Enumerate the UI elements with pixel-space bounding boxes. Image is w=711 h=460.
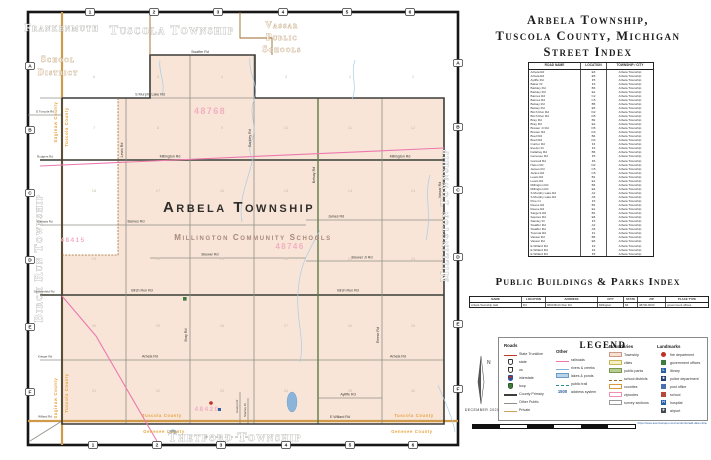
section-number: 29 — [156, 323, 161, 328]
tuscola-township-label: Tuscola Township — [109, 22, 234, 37]
section-number: 12 — [411, 125, 416, 130]
svg-text:5: 5 — [346, 10, 349, 16]
landmark-icon: L — [661, 368, 666, 373]
map-title-label: Arbela Township — [163, 199, 315, 216]
legend-item: Private — [504, 406, 544, 414]
millington-township-label: Millington Township — [439, 148, 451, 282]
svg-text:A: A — [28, 64, 32, 70]
svg-text:2: 2 — [156, 443, 159, 449]
section-number: 15 — [284, 188, 289, 193]
compass-north-arrow: N — [468, 352, 494, 408]
legend-other-column: Other railroads rivers & creeks lakes & … — [556, 349, 596, 396]
section-number: 13 — [411, 188, 416, 193]
svg-text:Millington Rd: Millington Rd — [160, 155, 181, 159]
legend-item: fire department — [657, 351, 700, 359]
svg-text:Belsay Rd: Belsay Rd — [312, 167, 316, 183]
landmark-icon: H — [661, 400, 666, 405]
section-number: 20 — [156, 256, 161, 261]
legend-swatch-icon — [609, 368, 622, 373]
svg-text:Sommerfeld Rd: Sommerfeld Rd — [34, 290, 55, 294]
svg-text:Reese Rd: Reese Rd — [376, 327, 380, 343]
svg-text:D: D — [28, 258, 32, 264]
landmark-icon — [661, 352, 666, 357]
legend-item: loop — [504, 382, 544, 390]
svg-text:1: 1 — [92, 443, 95, 449]
legend-item: public trail — [556, 380, 596, 388]
legend-boundaries-column: Boundaries Township cities public parks … — [609, 344, 649, 407]
section-number: 14 — [348, 188, 353, 193]
legend-item: lakes & ponds — [556, 372, 596, 380]
svg-text:2: 2 — [153, 10, 156, 16]
legend-swatch-icon — [504, 403, 517, 404]
section-number: 30 — [92, 323, 97, 328]
legend-item: survey sections — [609, 399, 649, 407]
tuscola-county-label-sw: Tuscola County — [64, 373, 69, 413]
legend-sw atch-icon — [556, 385, 569, 386]
svg-text:Arbela Rd: Arbela Rd — [142, 355, 158, 359]
svg-text:E Tuscola Rd: E Tuscola Rd — [36, 110, 54, 114]
svg-text:Lewis Rd: Lewis Rd — [120, 143, 124, 158]
zip-48415: 48415 — [60, 237, 85, 244]
legend-item: H hospital — [657, 399, 700, 407]
buildings-index-title: Public Buildings & Parks Index — [465, 276, 711, 288]
svg-text:3: 3 — [217, 10, 220, 16]
vassar-schools-label-2: Public — [266, 32, 298, 42]
buildings-index-row: Arbela Township Hall D3 9600 Birch Run R… — [470, 303, 708, 308]
landmark-icon: ★ — [661, 376, 666, 381]
section-number: 34 — [284, 388, 289, 393]
section-number: 23 — [348, 256, 353, 261]
map-page: { "index_panel": { "title_lines": ["Arbe… — [0, 0, 711, 460]
legend-item: Other Public — [504, 398, 544, 406]
svg-text:4: 4 — [285, 443, 288, 449]
section-number: 24 — [411, 256, 416, 261]
saginaw-county-label-sw: Saginaw County — [53, 377, 58, 418]
zip-48768: 48768 — [194, 106, 226, 116]
svg-text:F: F — [457, 387, 460, 393]
svg-text:Brewer Jr Rd: Brewer Jr Rd — [352, 256, 373, 260]
svg-text:D: D — [456, 255, 460, 261]
lake — [287, 392, 297, 412]
svg-text:6: 6 — [409, 10, 412, 16]
north-label: N — [487, 360, 491, 366]
legend-swatch-icon — [504, 411, 517, 412]
legend-item: government offices — [657, 359, 700, 367]
legend-swatch-icon — [508, 359, 513, 365]
legend-item: Township — [609, 351, 649, 359]
page-title: Arbela Township, Tuscola County, Michiga… — [465, 12, 711, 60]
street-index-table: ROAD NAME LOCATION TOWNSHIP / CITY Arbel… — [528, 62, 654, 257]
section-number: 10 — [284, 125, 289, 130]
legend-item: 1500 address system — [556, 388, 596, 396]
section-number: 16 — [220, 188, 225, 193]
section-number: 28 — [220, 323, 225, 328]
svg-text:Evelyn Dr: Evelyn Dr — [235, 399, 239, 412]
school-district-area — [62, 98, 118, 255]
legend-item: State Trunkline — [504, 350, 544, 358]
government-offices-icon — [183, 297, 187, 301]
saginaw-county-label-nw: Saginaw County — [53, 101, 58, 142]
legend-swatch-icon — [609, 400, 622, 405]
legend-sw atch-icon — [556, 361, 569, 362]
legend-item: railroads — [556, 356, 596, 364]
svg-text:4: 4 — [282, 10, 285, 16]
svg-text:Krieger Rd: Krieger Rd — [38, 355, 53, 359]
svg-text:5: 5 — [349, 443, 352, 449]
section-number: 22 — [284, 256, 289, 261]
legend-swatch-icon — [609, 384, 622, 389]
legend-swatch-icon — [609, 392, 622, 397]
legend-sw atch-icon — [556, 369, 569, 370]
school-district-label-2: District — [38, 67, 79, 77]
svg-text:Millington Rd: Millington Rd — [390, 155, 411, 159]
svg-text:Stanley Dr: Stanley Dr — [243, 403, 247, 417]
section-number: 27 — [284, 323, 289, 328]
tuscola-county-label-nw: Tuscola County — [64, 107, 69, 147]
legend-roads-column: Roads State Trunkline state us interstat… — [504, 343, 544, 414]
township-map: Arbela Township Millington Community Sch… — [0, 0, 468, 460]
svg-text:Vassar Rd: Vassar Rd — [438, 182, 442, 199]
svg-text:F: F — [29, 390, 32, 396]
school-district-label-1: School — [41, 54, 76, 64]
credits-block: https://www.avenzamaps.com/vendor/donald… — [627, 422, 707, 426]
svg-text:James Rd: James Rd — [328, 215, 344, 219]
section-number: 19 — [92, 256, 97, 261]
legend-item: cities — [609, 359, 649, 367]
legend-swatch-icon — [508, 375, 513, 381]
legend-item: interstate — [504, 374, 544, 382]
section-number: 17 — [156, 188, 161, 193]
section-number: 21 — [220, 256, 225, 261]
svg-text:Arbela Rd: Arbela Rd — [390, 355, 406, 359]
svg-text:S Murphy Lake Rd: S Murphy Lake Rd — [135, 93, 165, 97]
section-number: 33 — [220, 388, 225, 393]
legend-sw atch-icon: 1500 — [556, 389, 569, 395]
svg-text:B: B — [28, 128, 32, 134]
credits-url[interactable]: https://www.avenzamaps.com/vendor/donald… — [627, 422, 707, 426]
street-index-row: E Willard Rd F5 Arbela Township — [529, 252, 653, 256]
svg-text:Willard Rd: Willard Rd — [38, 415, 52, 419]
svg-text:C: C — [456, 188, 460, 194]
legend-item: school — [657, 391, 700, 399]
legend-item: L library — [657, 367, 700, 375]
legend-landmarks-column: Landmarks fire department government off… — [657, 344, 700, 415]
zip-48420: 48420 — [194, 406, 219, 413]
landmark-icon — [661, 384, 666, 389]
legend-item: public parks — [609, 367, 649, 375]
genesee-county-label-s2: Genesee County — [391, 429, 433, 434]
section-number: 26 — [348, 323, 353, 328]
svg-text:E Willard Rd: E Willard Rd — [330, 415, 350, 419]
legend-item: ★ police department — [657, 375, 700, 383]
svg-text:1: 1 — [89, 10, 92, 16]
svg-text:Birch Run Rd: Birch Run Rd — [337, 289, 358, 293]
section-number: 35 — [348, 388, 353, 393]
section-number: 25 — [411, 323, 416, 328]
genesee-county-label-s1: Genesee County — [143, 429, 185, 434]
legend-item: zipcodes — [609, 391, 649, 399]
legend-swatch-icon — [609, 380, 622, 381]
svg-text:B: B — [456, 125, 460, 131]
svg-text:Ayliffe Rd: Ayliffe Rd — [340, 393, 355, 397]
svg-text:Rodgers Rd: Rodgers Rd — [37, 155, 53, 159]
svg-text:A: A — [456, 61, 460, 67]
township-area-north — [150, 55, 255, 98]
section-number: 31 — [92, 388, 97, 393]
legend-item: school districts — [609, 375, 649, 383]
legend-swatch-icon — [609, 352, 622, 357]
legend-item: County Primary — [504, 390, 544, 398]
legend-item: rivers & creeks — [556, 364, 596, 372]
legend-swatch-icon — [508, 367, 513, 373]
vassar-schools-label-3: Schools — [262, 44, 301, 54]
school-system-label: Millington Community Schools — [174, 233, 332, 242]
tuscola-county-label-s1: Tuscola County — [142, 413, 182, 418]
section-number: 32 — [156, 388, 161, 393]
legend-item: post office — [657, 383, 700, 391]
legend-swatch-icon — [504, 394, 517, 396]
section-number: 18 — [92, 188, 97, 193]
legend-item: counties — [609, 383, 649, 391]
svg-text:Birch Run Rd: Birch Run Rd — [131, 289, 152, 293]
buildings-index-table: NAME LOCATION ADDRESS CITY STATE ZIP PLA… — [469, 296, 709, 308]
tuscola-county-label-s2: Tuscola County — [394, 413, 434, 418]
legend-item: ✈ airport — [657, 407, 700, 415]
svg-text:C: C — [28, 191, 32, 197]
vassar-schools-label-1: Vassar — [265, 20, 298, 30]
map-date: DECEMBER 2021 — [459, 408, 505, 412]
section-number: 36 — [411, 388, 416, 393]
legend-item: us — [504, 366, 544, 374]
svg-text:Bray Rd: Bray Rd — [184, 329, 188, 342]
landmark-icon — [661, 360, 666, 365]
svg-text:Barnes Rd: Barnes Rd — [128, 220, 145, 224]
svg-text:Brewer Rd: Brewer Rd — [202, 253, 219, 257]
frankenmuth-label: Frankenmuth — [25, 23, 100, 34]
fire-department-icon — [209, 401, 213, 405]
legend: LEGEND Roads State Trunkline state us in… — [498, 337, 708, 421]
landmark-icon — [661, 392, 666, 397]
svg-text:Canada Rd: Canada Rd — [37, 220, 53, 224]
scale-bar — [472, 424, 636, 429]
legend-swatch-icon — [508, 383, 513, 389]
legend-swatch-icon — [504, 355, 517, 356]
zip-48746: 48746 — [275, 242, 304, 251]
legend-item: state — [504, 358, 544, 366]
landmark-icon: ✈ — [661, 408, 666, 413]
svg-text:6: 6 — [412, 443, 415, 449]
svg-text:Barkley Rd: Barkley Rd — [248, 129, 252, 147]
legend-sw atch-icon — [556, 373, 569, 378]
legend-swatch-icon — [609, 360, 622, 365]
svg-text:Swaffer Rd: Swaffer Rd — [191, 50, 209, 54]
svg-text:3: 3 — [220, 443, 223, 449]
